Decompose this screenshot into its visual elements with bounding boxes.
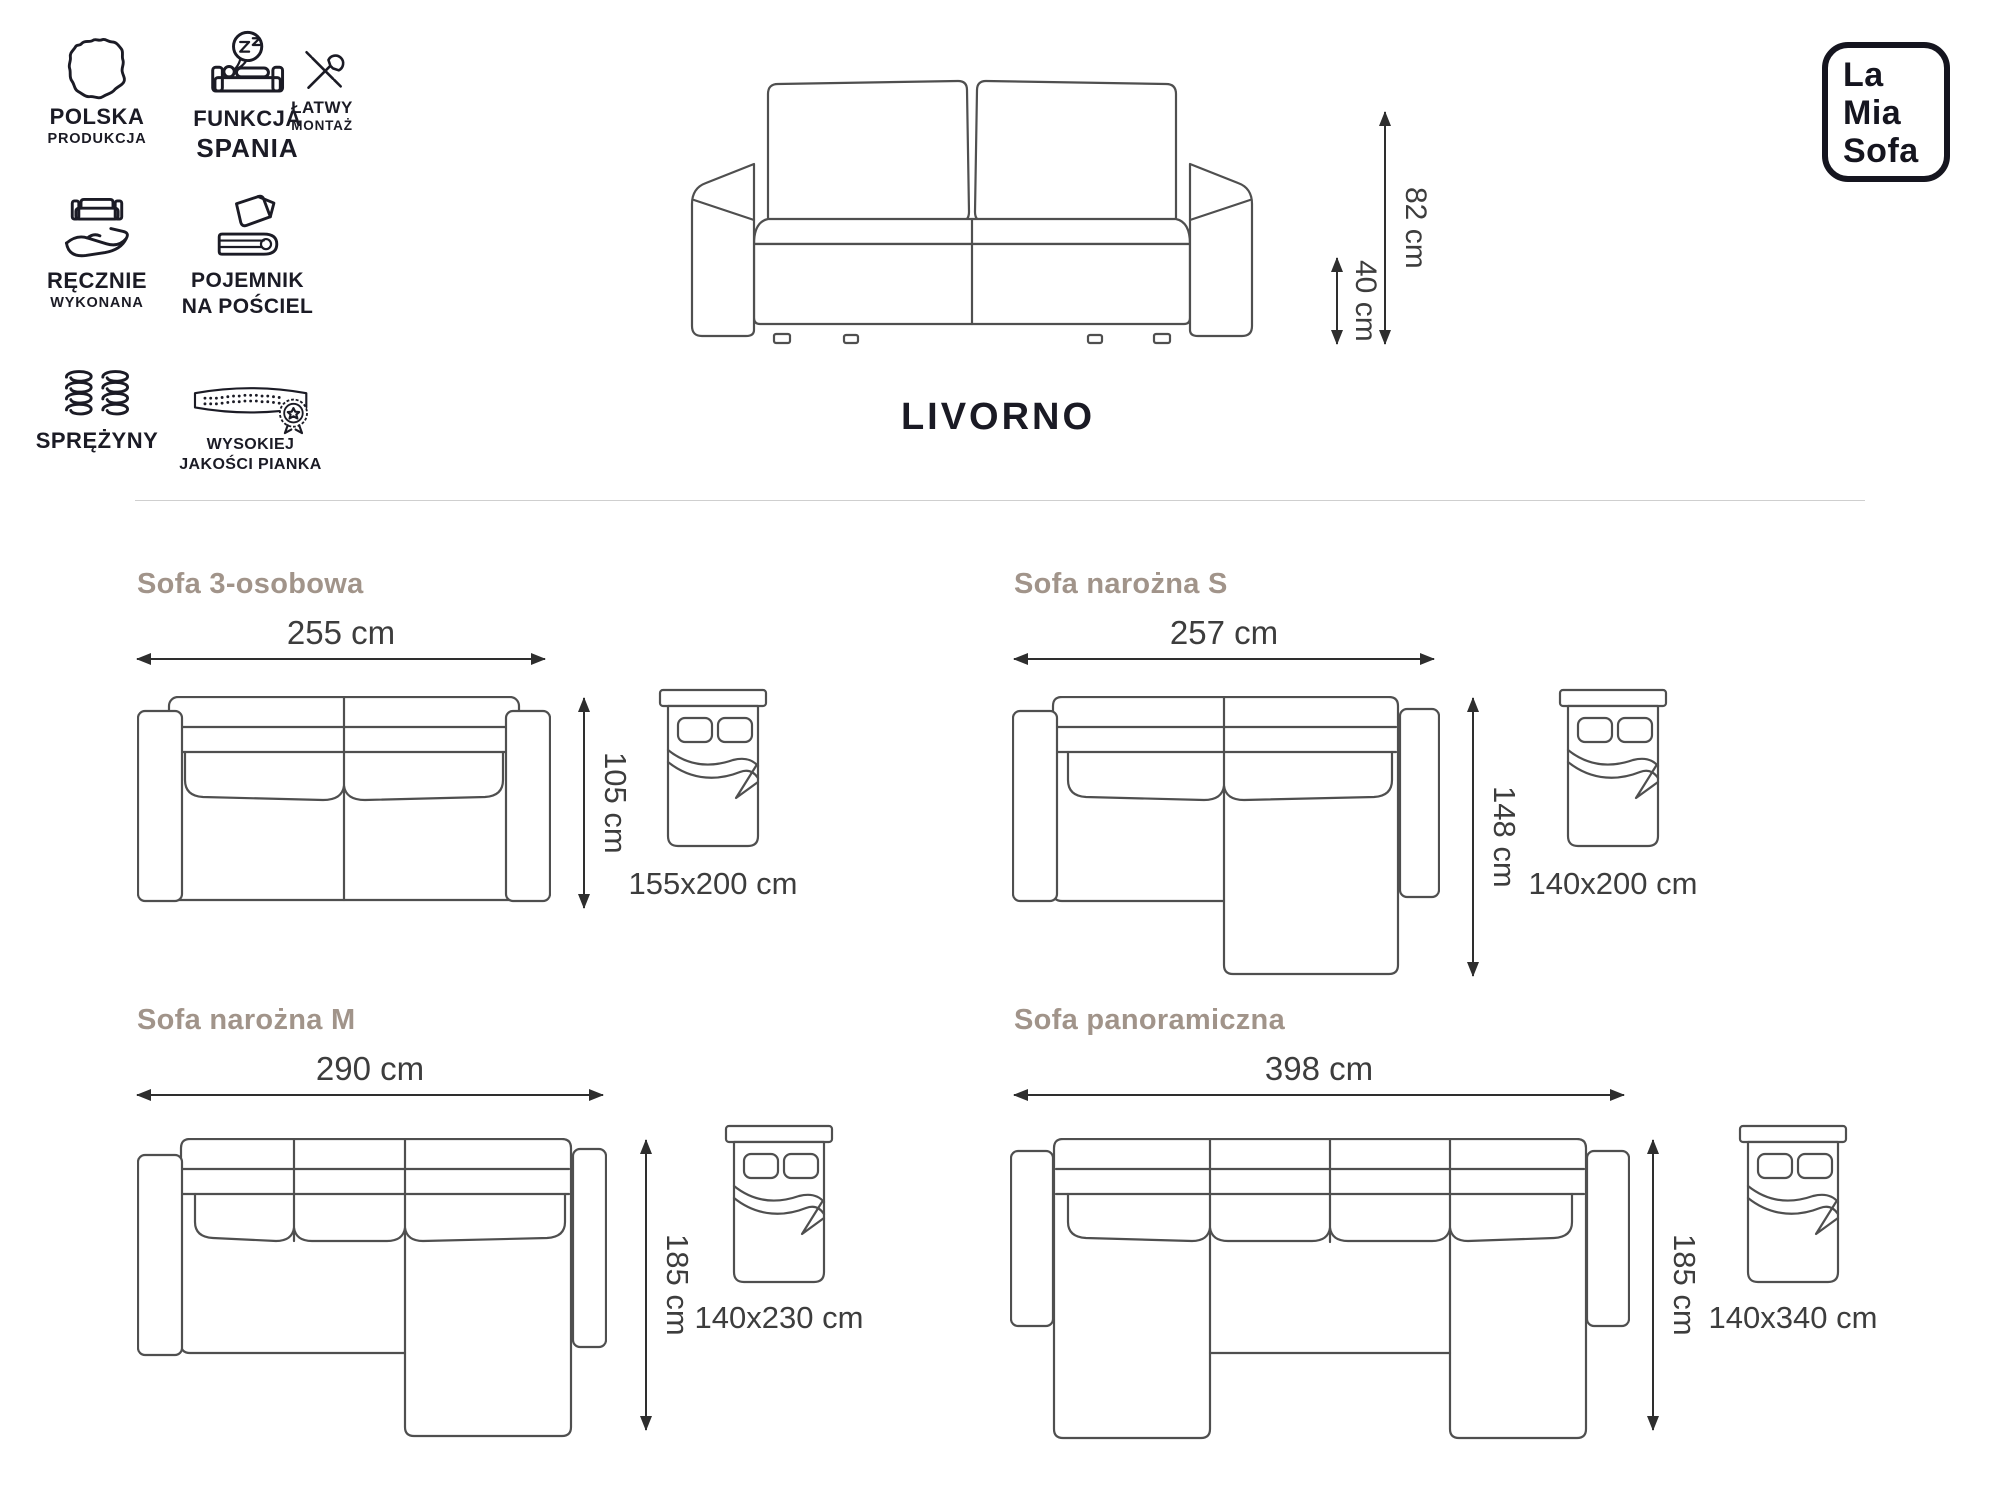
feature-label: ŁATWY: [262, 98, 382, 118]
depth-arrow: [1472, 698, 1474, 976]
bed-icon: [1548, 688, 1678, 856]
feature-polska-produkcja: POLSKA PRODUKCJA: [17, 36, 177, 148]
product-name: LIVORNO: [798, 396, 1198, 439]
feature-label: SPRĘŻYNY: [17, 428, 177, 454]
sofa-top-view-narozna-m: [137, 1138, 607, 1438]
bed-icon: [648, 688, 778, 856]
feature-sublabel: PRODUKCJA: [17, 130, 177, 148]
width-arrow: [137, 658, 545, 660]
seat-height-arrow: [1336, 258, 1338, 344]
depth-arrow: [645, 1140, 647, 1430]
bed-icon: [1728, 1124, 1858, 1292]
logo-line: Sofa: [1843, 132, 1944, 170]
sofa-top-view-3-osobowa: [137, 696, 551, 908]
sofa-top-view-narozna-s: [1012, 696, 1440, 976]
bed-size-label: 140x230 cm: [659, 1300, 899, 1336]
feature-latwy-montaz: ŁATWY MONTAŻ: [262, 40, 382, 135]
brand-logo: La Mia Sofa: [1822, 42, 1950, 182]
bedding-storage-icon: [212, 190, 284, 268]
width-arrow: [137, 1094, 603, 1096]
bed-size-label: 155x200 cm: [593, 866, 833, 902]
overall-height-arrow: [1384, 112, 1386, 344]
feature-pojemnik-na-posciel: POJEMNIK NA POŚCIEL: [165, 190, 330, 321]
feature-sublabel: WYKONANA: [17, 294, 177, 312]
sofa-front-view-drawing: [668, 72, 1276, 358]
feature-wysokiej-jakosci-pianka: WYSOKIEJ JAKOŚCI PIANKA: [158, 376, 343, 475]
variant-title-sofa-narozna-m: Sofa narożna M: [137, 1004, 356, 1037]
sofa-top-view-panoramiczna: [1010, 1138, 1630, 1440]
width-label: 255 cm: [137, 614, 545, 652]
bed-size-label: 140x340 cm: [1673, 1300, 1913, 1336]
width-label: 398 cm: [1014, 1050, 1624, 1088]
feature-sublabel: SPANIA: [165, 132, 330, 165]
poland-map-icon: [61, 36, 133, 104]
feature-sublabel: MONTAŻ: [262, 118, 382, 135]
feature-label: POLSKA: [17, 104, 177, 130]
hand-sofa-icon: [57, 192, 137, 268]
feature-sprezyny: SPRĘŻYNY: [17, 364, 177, 454]
width-arrow: [1014, 658, 1434, 660]
depth-label: 185 cm: [659, 1140, 695, 1430]
logo-line: La: [1843, 56, 1944, 94]
width-arrow: [1014, 1094, 1624, 1096]
width-label: 257 cm: [1014, 614, 1434, 652]
seat-height-label: 40 cm: [1348, 248, 1382, 354]
foam-mattress-icon: [185, 376, 317, 436]
logo-line: Mia: [1843, 94, 1944, 132]
variant-title-sofa-panoramiczna: Sofa panoramiczna: [1014, 1004, 1285, 1037]
feature-recznie-wykonana: RĘCZNIE WYKONANA: [17, 192, 177, 312]
feature-label: POJEMNIK: [165, 268, 330, 294]
depth-arrow: [583, 698, 585, 908]
product-sheet: POLSKA PRODUKCJA FUNKCJA SPANIA ŁATWY MO…: [0, 0, 2000, 1500]
tools-icon: [293, 40, 351, 98]
feature-sublabel: JAKOŚCI PIANKA: [158, 455, 343, 475]
overall-height-label: 82 cm: [1398, 112, 1432, 344]
feature-label: RĘCZNIE: [17, 268, 177, 294]
feature-sublabel: NA POŚCIEL: [165, 294, 330, 320]
variant-title-sofa-3-osobowa: Sofa 3-osobowa: [137, 568, 364, 601]
depth-label: 185 cm: [1666, 1140, 1702, 1430]
bed-size-label: 140x200 cm: [1493, 866, 1733, 902]
depth-label: 148 cm: [1486, 698, 1522, 976]
variant-title-sofa-narozna-s: Sofa narożna S: [1014, 568, 1228, 601]
springs-icon: [56, 364, 138, 428]
divider: [135, 500, 1865, 501]
feature-label: WYSOKIEJ: [158, 436, 343, 455]
bed-icon: [714, 1124, 844, 1292]
width-label: 290 cm: [137, 1050, 603, 1088]
depth-arrow: [1652, 1140, 1654, 1430]
